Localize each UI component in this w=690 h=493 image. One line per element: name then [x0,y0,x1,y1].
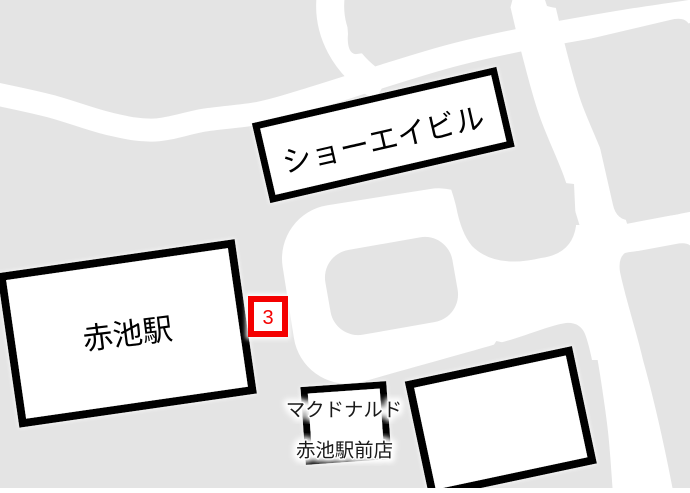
svg-text:3: 3 [262,307,273,329]
